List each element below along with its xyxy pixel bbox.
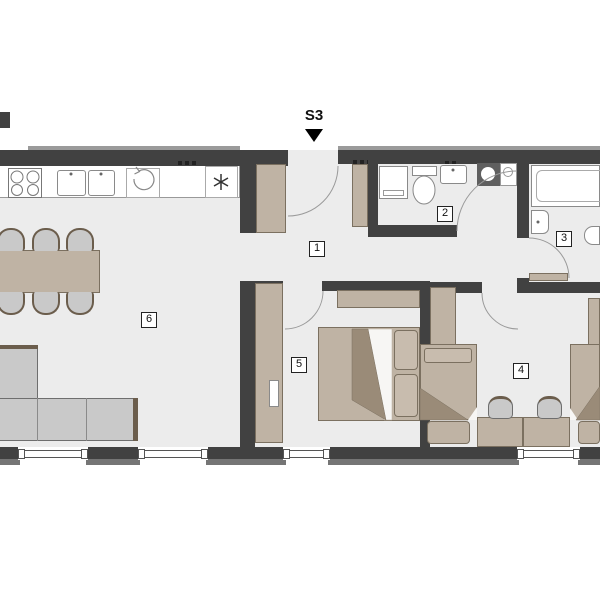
window-bedroom-center <box>283 447 330 460</box>
washing-machine-door <box>383 190 404 196</box>
room-label-bedroom-center: 5 <box>291 357 307 373</box>
desk-chair-left <box>488 396 513 419</box>
sofa-back-top <box>0 345 38 349</box>
vent-hatch-icon-2 <box>353 160 368 164</box>
room-label-bathroom-second: 3 <box>556 231 572 247</box>
window-bedroom-right <box>517 447 580 460</box>
room-label-bedroom-right: 4 <box>513 363 529 379</box>
dining-chair-5 <box>32 292 60 315</box>
wall-bottom-outer1 <box>0 459 20 465</box>
pillow-2 <box>394 374 418 417</box>
desk-chair-right <box>537 396 562 419</box>
wardrobe-bedroom-center-side <box>255 283 283 443</box>
room-label-bathroom-main: 2 <box>437 206 453 222</box>
fridge <box>205 166 238 198</box>
window-living-2 <box>138 447 208 460</box>
vent-hatch-icon-3 <box>445 161 459 164</box>
nightstand-right <box>578 421 600 444</box>
entrance-arrow-icon <box>305 129 323 142</box>
entrance-door-opening <box>288 150 338 166</box>
window-living-1 <box>18 447 88 460</box>
pillow-1 <box>394 330 418 370</box>
dining-chair-3 <box>66 228 94 251</box>
wardrobe-bedroom-right-left <box>430 287 456 345</box>
wall-bottom-outer4 <box>328 459 519 465</box>
stove <box>8 168 42 198</box>
sofa-seam-1 <box>37 398 38 441</box>
single-bed-right <box>570 344 600 420</box>
bathtub-basin <box>536 170 600 202</box>
dining-chair-1 <box>0 228 25 251</box>
wall-bottom-outer2 <box>86 459 140 465</box>
bathroom-counter <box>500 163 517 186</box>
wall-bottom-outer5 <box>578 459 600 465</box>
pillow-bed-left <box>424 348 472 363</box>
vent-hatch-icon <box>178 161 198 165</box>
bathroom2-sink <box>531 210 549 234</box>
kitchen-sink-right <box>88 170 115 196</box>
nightstand-left <box>427 421 470 444</box>
dining-chair-6 <box>66 292 94 315</box>
desk-right <box>523 417 570 447</box>
kitchen-sink-left <box>57 170 86 196</box>
door-leaf-bathroom-second <box>529 273 568 281</box>
wall-bathroom-main-bottom <box>368 225 457 237</box>
sofa-seam-2 <box>86 398 87 441</box>
toilet-tank <box>412 166 437 176</box>
wardrobe-entry-left <box>256 164 286 233</box>
entrance-label: S3 <box>294 107 334 124</box>
bathroom-sink <box>440 165 467 184</box>
sofa-back-right <box>133 398 138 441</box>
wall-bottom-outer3 <box>206 459 286 465</box>
wardrobe-hallway <box>352 164 368 227</box>
wall-stub-left <box>0 112 10 128</box>
wardrobe-bedroom-right-right <box>588 298 600 345</box>
wall-living-bedroom <box>240 281 255 460</box>
dining-chair-2 <box>32 228 60 251</box>
desk-left <box>477 417 523 447</box>
floor-plan: S3 <box>0 0 600 600</box>
room-label-hallway: 1 <box>309 241 325 257</box>
wall-bedroom-right-top-b <box>518 282 600 293</box>
wall-bathroom-divider-upper <box>517 158 529 238</box>
dishwasher <box>126 168 160 198</box>
room-label-living-dining: 6 <box>141 312 157 328</box>
closet-panel <box>269 380 279 407</box>
bathroom2-tub-end <box>584 226 600 245</box>
wall-entry-column <box>240 150 256 233</box>
wardrobe-bedroom-center-top <box>337 290 420 308</box>
dining-table <box>0 250 100 293</box>
shower-drain-icon <box>481 167 495 181</box>
sofa-base <box>0 398 138 441</box>
